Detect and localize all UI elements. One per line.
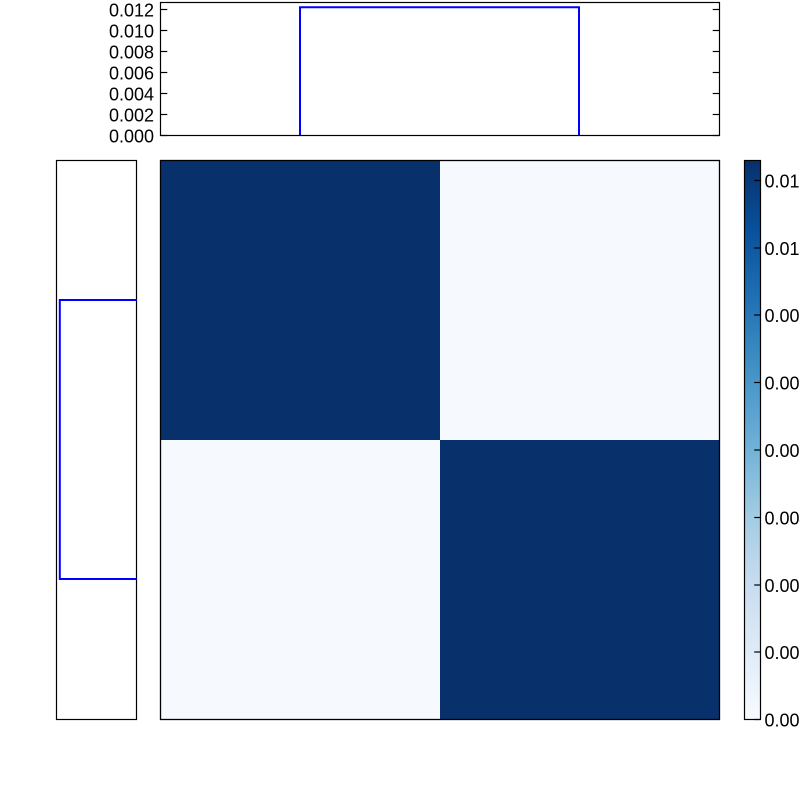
svg-text:0.006: 0.006 (109, 63, 154, 83)
svg-text:0.0120: 0.0120 (765, 171, 800, 191)
svg-text:0.0075: 0.0075 (765, 373, 800, 393)
svg-text:0.000: 0.000 (109, 126, 154, 146)
svg-text:0.0030: 0.0030 (765, 576, 800, 596)
svg-text:0.0090: 0.0090 (765, 306, 800, 326)
svg-text:0.008: 0.008 (109, 42, 154, 62)
svg-text:0.004: 0.004 (109, 84, 154, 104)
svg-text:0.0045: 0.0045 (765, 508, 800, 528)
svg-text:0.0015: 0.0015 (765, 643, 800, 663)
svg-text:0.010: 0.010 (109, 21, 154, 41)
svg-text:0.0105: 0.0105 (765, 239, 800, 259)
svg-text:0.0000: 0.0000 (765, 710, 800, 730)
svg-text:0.012: 0.012 (109, 0, 154, 20)
svg-text:0.0060: 0.0060 (765, 441, 800, 461)
svg-text:0.002: 0.002 (109, 105, 154, 125)
